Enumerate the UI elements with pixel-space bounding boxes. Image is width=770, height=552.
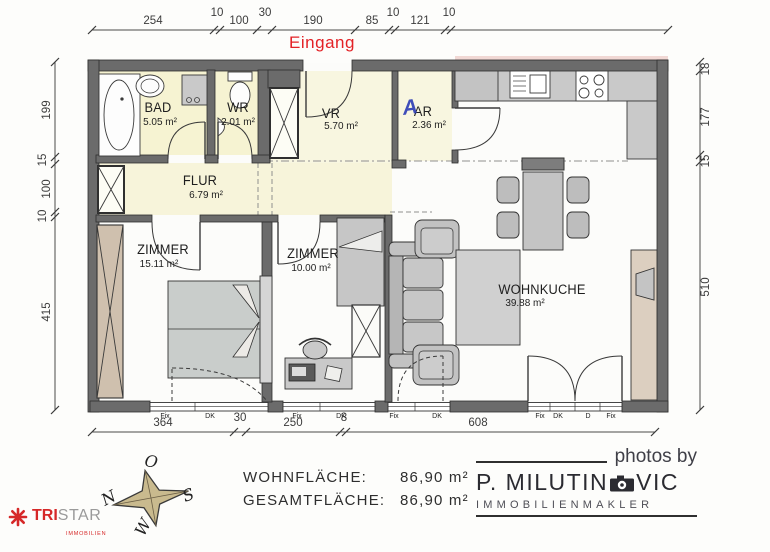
dim-right-4: 510 <box>700 277 712 296</box>
bad-sink <box>136 75 164 97</box>
dim-left-4: 10 <box>37 210 49 223</box>
dim-left-2: 15 <box>37 154 49 167</box>
window-label-dk: DK <box>205 413 215 420</box>
armchair-bottom <box>413 345 459 385</box>
tagline-rule <box>476 461 607 463</box>
room-label-zimmer-klein: ZIMMER <box>287 246 339 261</box>
compass-south-label: S <box>180 484 197 506</box>
gesamtflaeche-value: 86,90 m² <box>400 489 469 512</box>
compass-rose: O N S W <box>97 451 197 539</box>
window-label-d: D <box>585 413 590 420</box>
wardrobe-large <box>97 225 123 398</box>
tristar-text-tri: TRI <box>32 507 58 524</box>
dim-top-1: 254 <box>143 15 162 27</box>
desk <box>285 358 352 389</box>
room-area-zimmer-klein: 10.00 m² <box>291 262 330 274</box>
tristar-subtitle: IMMOBILIEN <box>66 525 106 543</box>
wohnflaeche-label: WOHNFLÄCHE: <box>243 466 400 489</box>
entrance-label: Eingang <box>289 33 355 53</box>
tv-sideboard <box>631 250 657 400</box>
tristar-star-icon <box>8 507 28 527</box>
kitchen-sink <box>510 71 550 98</box>
double-bed <box>168 276 272 383</box>
tristar-logo: TRISTAR IMMOBILIEN <box>8 507 106 543</box>
dim-top-7: 10 <box>387 7 400 19</box>
window-label-dk: DK <box>553 413 563 420</box>
area-summary: WOHNFLÄCHE: 86,90 m² GESAMTFLÄCHE: 86,90… <box>243 466 469 512</box>
stove <box>576 71 608 101</box>
room-area-wohnkueche: 39.88 m² <box>505 297 544 309</box>
dim-top-8: 121 <box>410 15 429 27</box>
window-label-fix: Fix <box>292 413 301 420</box>
single-bed <box>337 218 384 306</box>
room-label-wr: WR <box>227 100 249 115</box>
room-area-vr: 5.70 m² <box>324 120 358 132</box>
photographer-name-right: VIC <box>636 469 679 496</box>
photographer-name-left: P. MILUTIN <box>476 469 608 496</box>
dim-left-1: 199 <box>41 100 53 119</box>
window-label-fix: Fix <box>606 413 615 420</box>
dim-top-2: 10 <box>211 7 224 19</box>
room-area-bad: 5.05 m² <box>143 116 177 128</box>
dim-bottom-2: 30 <box>234 412 247 424</box>
blue-annotation: A <box>401 95 419 121</box>
dim-top-4: 30 <box>259 7 272 19</box>
room-label-flur: FLUR <box>183 173 217 188</box>
room-area-zimmer-gross: 15.11 m² <box>140 258 179 270</box>
window-label-fix: Fix <box>389 413 398 420</box>
photos-by-text: photos by <box>615 446 697 468</box>
dim-left-3: 100 <box>41 179 53 198</box>
room-area-wr: 2.01 m² <box>221 116 255 128</box>
dim-right-2: 177 <box>700 107 712 126</box>
wohnflaeche-value: 86,90 m² <box>400 466 469 489</box>
logo-bottom-rule <box>476 515 697 517</box>
dim-top-9: 10 <box>443 7 456 19</box>
room-label-vr: VR <box>322 106 340 121</box>
dim-top-3: 100 <box>229 15 248 27</box>
window-label-fix: Fix <box>535 413 544 420</box>
photographer-logo: photos by P. MILUTIN VIC IMMOBILIENMAKLE… <box>476 446 697 517</box>
wardrobe-small <box>352 305 380 357</box>
compass-east-label: O <box>143 451 159 472</box>
window-label-dk: DK <box>336 413 346 420</box>
camera-icon <box>609 475 635 493</box>
room-label-zimmer-gross: ZIMMER <box>137 242 189 257</box>
armchair-top <box>415 220 459 258</box>
dim-bottom-5: 608 <box>468 417 487 429</box>
dim-top-6: 85 <box>366 15 379 27</box>
dim-top-5: 190 <box>303 15 322 27</box>
window-label-dk: DK <box>432 413 442 420</box>
room-label-wohnkueche: WOHNKUCHE <box>498 282 585 297</box>
dim-right-1: 18 <box>700 63 712 76</box>
scan-artifact <box>455 56 668 60</box>
bathtub <box>99 74 140 156</box>
room-label-bad: BAD <box>145 100 172 115</box>
dim-left-5: 415 <box>41 302 53 321</box>
photographer-subtitle: IMMOBILIENMAKLER <box>476 499 697 511</box>
window-label-fix: Fix <box>160 413 169 420</box>
gesamtflaeche-label: GESAMTFLÄCHE: <box>243 489 400 512</box>
room-area-flur: 6.79 m² <box>189 189 223 201</box>
room-area-ar: 2.36 m² <box>412 119 446 131</box>
floorplan-page: O N S W Eingang 254 10 100 30 190 85 10 … <box>0 0 770 552</box>
tristar-text-star: STAR <box>58 507 101 524</box>
dim-right-3: 15 <box>700 155 712 168</box>
washing-machine <box>182 75 207 105</box>
